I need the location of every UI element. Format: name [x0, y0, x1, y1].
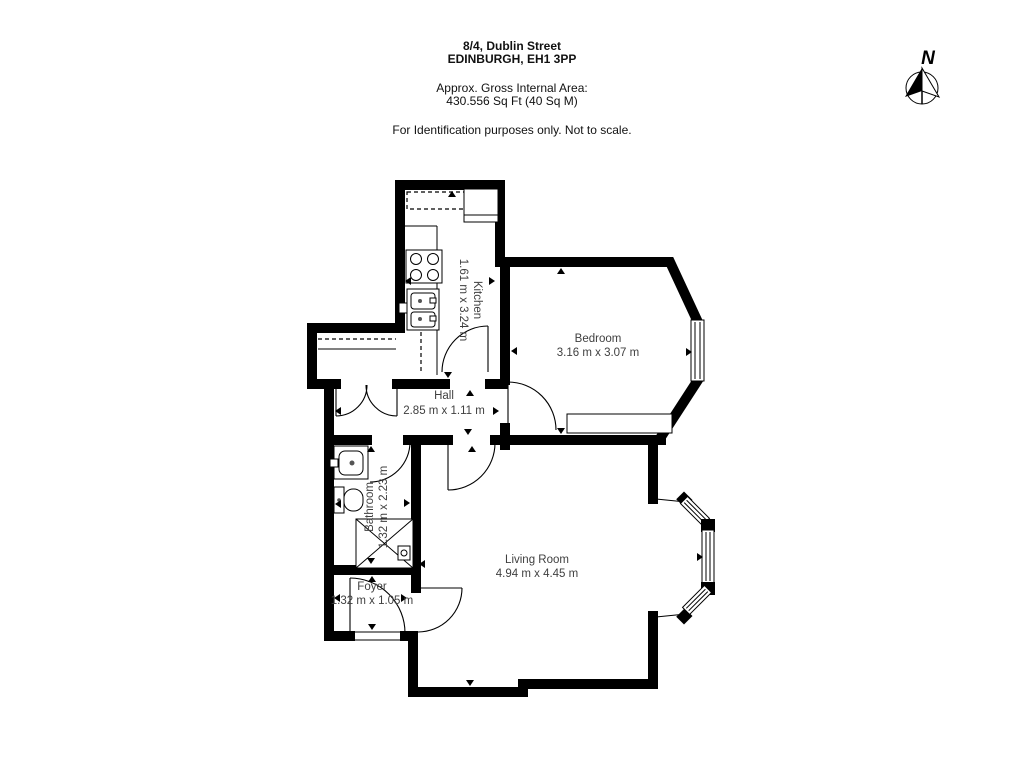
cupboard-double-door-icon	[336, 384, 397, 416]
room-dims-hall: 2.85 m x 1.11 m	[403, 405, 485, 417]
living-door-from-foyer-icon	[418, 588, 462, 632]
dimension-arrow-icon	[464, 429, 472, 435]
bathroom-door-icon	[370, 442, 410, 482]
dimension-arrow-icon	[557, 428, 565, 434]
room-label-kitchen: Kitchen 1.61 m x 3.24 m	[457, 259, 483, 341]
overhead-units-icon	[407, 192, 465, 209]
room-name-kitchen: Kitchen	[471, 281, 483, 319]
living-window-angled-bottom-icon	[683, 585, 712, 614]
floorplan-page: 8/4, Dublin Street EDINBURGH, EH1 3PP Ap…	[0, 0, 1024, 768]
disclaimer: For Identification purposes only. Not to…	[0, 124, 1024, 137]
bedroom-window-icon	[691, 320, 704, 381]
dimension-arrow-icon	[368, 624, 376, 630]
bedroom-door-icon	[508, 382, 556, 430]
room-dims-kitchen: 1.61 m x 3.24 m	[457, 259, 469, 341]
hob-icon	[406, 250, 442, 283]
room-name-foyer: Foyer	[357, 581, 387, 593]
dimension-arrow-icon	[404, 499, 410, 507]
dimension-arrow-icon	[493, 407, 499, 415]
wardrobe-icon	[567, 414, 672, 433]
room-name-hall: Hall	[434, 390, 454, 402]
toilet-icon	[334, 487, 363, 513]
wall-living-bottom	[405, 616, 653, 692]
living-window-middle-icon	[702, 530, 714, 583]
dimension-arrow-icon	[466, 680, 474, 686]
appliance-icon	[464, 189, 498, 222]
walls	[312, 185, 696, 692]
wall-kitchen-bedroom-top	[400, 185, 696, 318]
area-value: 430.556 Sq Ft (40 Sq M)	[0, 95, 1024, 108]
room-name-bedroom: Bedroom	[575, 333, 622, 345]
wash-basin-icon	[330, 446, 368, 479]
dimension-arrow-icon	[468, 446, 476, 452]
dimension-arrow-icon	[557, 268, 565, 274]
windows	[656, 320, 715, 624]
room-dims-bedroom: 3.16 m x 3.07 m	[557, 347, 639, 359]
address-line-2: EDINBURGH, EH1 3PP	[0, 53, 1024, 66]
room-name-bathroom: Bathroom	[364, 482, 376, 532]
room-dims-foyer: 1.32 m x 1.05 m	[331, 595, 413, 607]
plan-header: 8/4, Dublin Street EDINBURGH, EH1 3PP Ap…	[0, 40, 1024, 137]
dimension-arrow-icon	[511, 347, 517, 355]
dimension-arrow-icon	[466, 390, 474, 396]
room-dims-bathroom: 1.32 m x 2.23 m	[378, 466, 390, 548]
room-label-bedroom: Bedroom 3.16 m x 3.07 m	[557, 333, 639, 359]
living-bay	[656, 492, 715, 625]
storage-cupboard	[318, 339, 396, 349]
room-name-living-room: Living Room	[505, 554, 569, 566]
room-label-foyer: Foyer 1.32 m x 1.05 m	[331, 581, 413, 607]
room-dims-living-room: 4.94 m x 4.45 m	[496, 568, 578, 580]
room-label-living-room: Living Room 4.94 m x 4.45 m	[496, 554, 578, 580]
dimension-arrow-icon	[444, 372, 452, 378]
dimension-arrow-icon	[489, 277, 495, 285]
